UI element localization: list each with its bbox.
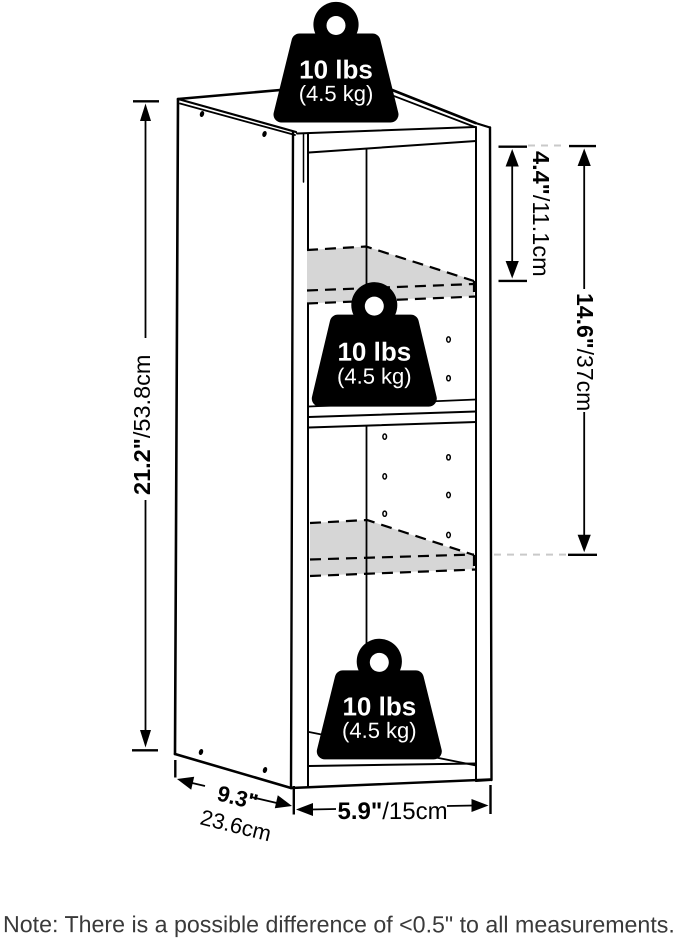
- svg-text:5.9"/15cm: 5.9"/15cm: [337, 798, 447, 825]
- svg-text:14.6"/37cm: 14.6"/37cm: [572, 293, 598, 411]
- svg-text:21.2"/53.8cm: 21.2"/53.8cm: [129, 355, 155, 495]
- svg-text:Note: There is a possible diff: Note: There is a possible difference of …: [3, 911, 675, 937]
- svg-text:(4.5 kg): (4.5 kg): [299, 81, 374, 106]
- svg-text:4.4"/11.1cm: 4.4"/11.1cm: [528, 151, 554, 277]
- svg-text:10 lbs: 10 lbs: [337, 337, 411, 367]
- svg-text:(4.5 kg): (4.5 kg): [342, 718, 417, 743]
- svg-text:(4.5 kg): (4.5 kg): [337, 364, 412, 389]
